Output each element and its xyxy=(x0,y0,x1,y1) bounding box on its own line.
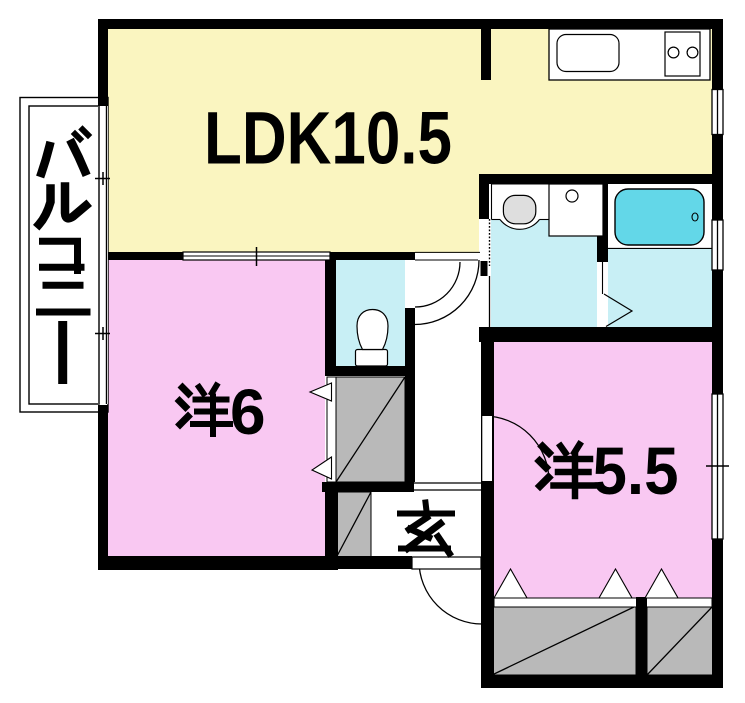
svg-text:5.5: 5.5 xyxy=(593,434,679,509)
svg-text:6: 6 xyxy=(230,376,266,448)
svg-text:LDK10.5: LDK10.5 xyxy=(204,97,452,180)
